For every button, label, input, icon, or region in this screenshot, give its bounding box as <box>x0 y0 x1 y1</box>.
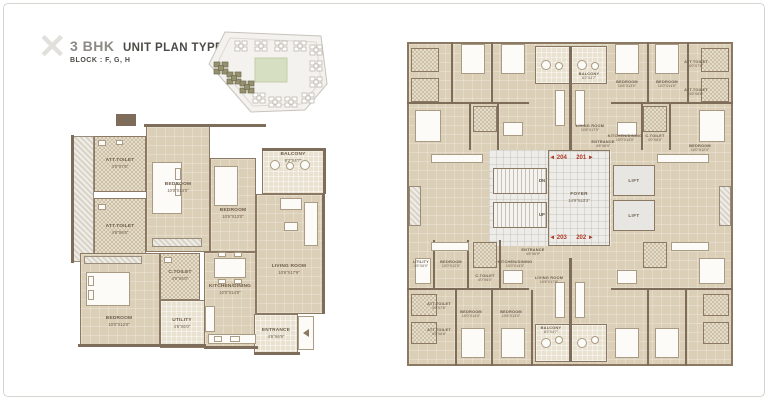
u203-label-att-toilet-1: ATT.TOILET4'0"X7'6" <box>427 301 451 311</box>
kitchen-sink <box>214 336 222 342</box>
page: ✕ 3 BHK UNIT PLAN TYPE - 3 BLOCK : F, G,… <box>0 0 768 400</box>
room-dim: 4'6"X6'0" <box>413 264 429 269</box>
sofa <box>280 198 302 210</box>
lift-label: LIFT <box>628 178 639 183</box>
central-green <box>255 58 287 82</box>
room-dim: 4'6"X6'6" <box>427 332 451 337</box>
coffee-table <box>284 222 298 231</box>
unit-marker-201: 201 ► <box>576 155 594 161</box>
room-dim: 10'0"X14'0" <box>165 188 191 193</box>
wardrobe <box>152 238 202 247</box>
floor-plan-cluster: DN UP LIFT LIFT FOYER14'9"X23'3" ◄ 204 2… <box>403 36 737 372</box>
room-label-living: LIVING ROOM10'6"X17'9" <box>272 264 306 276</box>
key-plan <box>203 24 337 120</box>
dining-table <box>214 258 246 278</box>
room-dim: 4'0"X6'0" <box>645 138 664 143</box>
bed <box>461 328 485 358</box>
title-bhk: 3 BHK <box>70 38 115 54</box>
wall <box>497 104 499 150</box>
room-dim: 4'0"X6'0" <box>168 276 191 281</box>
wc <box>164 257 172 263</box>
pillow <box>88 276 94 286</box>
room-dim: 4'6"X6'9" <box>262 334 290 339</box>
wall <box>323 148 326 194</box>
room-dim: 4'6"X6'9" <box>591 144 614 149</box>
brand-logo: ✕ <box>38 30 67 64</box>
room-dim: 4'0"X7'6" <box>106 164 135 169</box>
wall <box>71 135 74 263</box>
wall <box>469 104 471 150</box>
room-dim: 10'0"X12'0" <box>689 148 711 153</box>
room-dim: 4'0"X7'6" <box>684 64 708 69</box>
room-label-att-toilet-1: ATT.TOILET4'0"X7'6" <box>106 158 135 170</box>
room-dim: 8'2"X4'7" <box>280 158 305 163</box>
toilet <box>473 242 497 268</box>
unit-marker-203: ◄ 203 <box>549 235 567 241</box>
toilet <box>473 106 497 132</box>
room-dim: 10'0"X14'0" <box>209 290 251 295</box>
wall <box>407 288 529 290</box>
room-label-att-toilet-2: ATT.TOILET4'6"X6'6" <box>106 224 135 236</box>
toilet <box>411 78 439 102</box>
balcony-chair <box>577 60 587 70</box>
balcony-chair <box>270 160 280 170</box>
entrance-arrow-icon <box>303 329 309 337</box>
block-label: BLOCK : F, G, H <box>70 57 130 64</box>
u203-label-c-toilet: C.TOILET4'0"X6'0" <box>475 273 494 283</box>
kitchen-counter <box>671 242 709 251</box>
bed <box>461 44 485 74</box>
room-dim: 10'6"X17'9" <box>272 270 306 275</box>
dining-chair <box>234 252 242 257</box>
balcony-chair <box>591 62 599 70</box>
room-dim: 10'0"X12'0" <box>106 322 132 327</box>
wall <box>569 84 572 150</box>
dining-table <box>617 270 637 284</box>
u203-label-bedroom-e: BEDROOM10'6"X13'0" <box>500 309 522 319</box>
duct-shaft <box>719 186 731 226</box>
toilet <box>643 242 667 268</box>
room-dim: 4'0"X7'6" <box>427 306 451 311</box>
room-dim: 10'6"X13'0" <box>500 314 522 319</box>
dining-table <box>503 122 523 136</box>
kitchen-counter <box>431 154 483 163</box>
bed <box>699 258 725 284</box>
sofa <box>555 282 565 318</box>
room-dim: 10'0"X12'0" <box>440 264 462 269</box>
wall <box>451 42 453 104</box>
wc <box>98 204 106 210</box>
u201-label-balcony: BALCONY8'2"X4'7" <box>579 71 600 81</box>
room-label-entrance: ENTRANCE4'6"X6'9" <box>262 328 290 340</box>
duct-shaft <box>72 136 94 262</box>
u201-label-att-toilet-2: ATT.TOILET4'6"X6'6" <box>684 87 708 97</box>
room-label-bedroom-2: BEDROOM10'6"X13'0" <box>220 208 246 220</box>
u201-label-bedroom-c: BEDROOM10'0"X12'0" <box>689 143 711 153</box>
u201-label-bedroom-a: BEDROOM10'6"X13'0" <box>616 79 638 89</box>
sofa <box>304 202 318 246</box>
wall <box>407 102 529 104</box>
kitchen-hob <box>230 336 240 342</box>
room-dim: 4'0"X6'0" <box>475 278 494 283</box>
wall-duct <box>116 114 136 126</box>
unit-marker-204: ◄ 204 <box>549 155 567 161</box>
room-label-bedroom-master: BEDROOM10'0"X14'0" <box>165 182 191 194</box>
bed <box>655 44 679 74</box>
wall <box>569 258 572 324</box>
room-dim: 4'6"X6'9" <box>521 252 544 257</box>
sofa <box>575 282 585 318</box>
balcony-chair <box>541 60 551 70</box>
balcony-chair <box>591 336 599 344</box>
u201-label-living: LIVING ROOM10'6"X17'9" <box>576 123 604 133</box>
wall <box>531 290 533 366</box>
u201-label-kitchen: KITCHEN/DINING10'0"X14'0" <box>608 133 643 143</box>
wall <box>611 102 733 104</box>
u203-label-living: LIVING ROOM10'6"X17'9" <box>535 275 563 285</box>
wall <box>78 344 206 347</box>
wall <box>669 104 671 150</box>
u203-label-bedroom-c: BEDROOM10'0"X12'0" <box>440 259 462 269</box>
u203-label-att-toilet-2: ATT.TOILET4'6"X6'6" <box>427 327 451 337</box>
balcony-chair <box>541 338 551 348</box>
wall <box>569 324 572 362</box>
wall <box>322 194 325 314</box>
toilet <box>703 294 729 316</box>
kitchen-counter <box>657 154 709 163</box>
wall <box>647 290 649 366</box>
u203-label-balcony: BALCONY8'2"X4'7" <box>541 325 562 335</box>
room-dim: 10'0"X14'0" <box>656 84 678 89</box>
bed <box>501 44 525 74</box>
wall <box>569 46 572 84</box>
sofa <box>575 90 585 126</box>
bed <box>501 328 525 358</box>
wardrobe <box>84 256 142 264</box>
room-label-c-toilet: C.TOILET4'0"X6'0" <box>168 270 191 282</box>
bed <box>699 110 725 142</box>
room-dim: 10'0"X14'0" <box>498 264 533 269</box>
room-dim: 8'2"X4'7" <box>541 330 562 335</box>
balcony-chair <box>555 336 563 344</box>
room-dim: 10'6"X13'0" <box>220 214 246 219</box>
basin <box>116 140 123 145</box>
balcony-chair <box>577 338 587 348</box>
dining-chair <box>218 252 226 257</box>
bed <box>415 110 441 142</box>
room-label-utility: UTILITY4'6"X6'0" <box>172 318 192 330</box>
room-dim: 10'6"X17'9" <box>576 128 604 133</box>
room-dim: 10'6"X13'0" <box>616 84 638 89</box>
wc <box>98 140 106 146</box>
unit-plan: ATT.TOILET4'0"X7'6" ATT.TOILET4'6"X6'6" … <box>58 110 340 368</box>
room-dim: 14'9"X23'3" <box>568 198 589 203</box>
toilet <box>703 322 729 344</box>
kitchen-counter <box>431 242 469 251</box>
room-dim: 10'0"X14'0" <box>460 314 482 319</box>
lift-label: LIFT <box>628 213 639 218</box>
room-label-balcony: BALCONY8'2"X4'7" <box>280 152 305 164</box>
wall <box>685 290 687 366</box>
wall <box>144 124 266 127</box>
balcony-chair <box>555 62 563 70</box>
wall <box>204 346 258 349</box>
wall <box>611 288 733 290</box>
fridge <box>205 306 215 332</box>
room-label-kitchen: KITCHEN/DINING10'0"X14'0" <box>209 284 251 296</box>
room-dim: 4'6"X6'6" <box>106 230 135 235</box>
lift-1: LIFT <box>613 165 655 196</box>
wall <box>491 42 493 104</box>
u201-label-bedroom-b: BEDROOM10'0"X14'0" <box>656 79 678 89</box>
sofa <box>555 90 565 126</box>
u201-label-att-toilet-1: ATT.TOILET4'0"X7'6" <box>684 59 708 69</box>
toilet <box>411 48 439 72</box>
bed <box>615 328 639 358</box>
room-label-bedroom-3: BEDROOM10'0"X12'0" <box>106 316 132 328</box>
u203-label-kitchen: KITCHEN/DINING10'0"X14'0" <box>498 259 533 269</box>
bed <box>214 166 238 206</box>
u203-label-bedroom-d: BEDROOM10'0"X14'0" <box>460 309 482 319</box>
room-dim: 10'0"X14'0" <box>608 138 643 143</box>
room-dim: 8'2"X4'7" <box>579 76 600 81</box>
wall <box>455 290 457 366</box>
room-dim: 4'6"X6'0" <box>172 324 192 329</box>
u201-label-c-toilet: C.TOILET4'0"X6'0" <box>645 133 664 143</box>
bed <box>655 328 679 358</box>
room-dim: 4'6"X6'6" <box>684 92 708 97</box>
entrance-label-bottom: ENTRANCE4'6"X6'9" <box>521 247 544 257</box>
pillow <box>175 168 181 180</box>
toilet <box>643 106 667 132</box>
bed <box>615 44 639 74</box>
u203-label-utility: UTILITY4'6"X6'0" <box>413 259 429 269</box>
dining-table <box>503 270 523 284</box>
stairs-dn-label: DN <box>539 178 545 183</box>
wall <box>262 148 326 151</box>
room-dim: 10'6"X17'9" <box>535 280 563 285</box>
wall <box>254 352 300 355</box>
duct-shaft <box>409 186 421 226</box>
lift-2: LIFT <box>613 200 655 231</box>
pillow <box>88 290 94 300</box>
wall <box>647 42 649 104</box>
wall <box>491 290 493 366</box>
unit-marker-202: 202 ► <box>576 235 594 241</box>
stairs-up-label: UP <box>539 212 545 217</box>
foyer-label: FOYER14'9"X23'3" <box>568 192 589 204</box>
